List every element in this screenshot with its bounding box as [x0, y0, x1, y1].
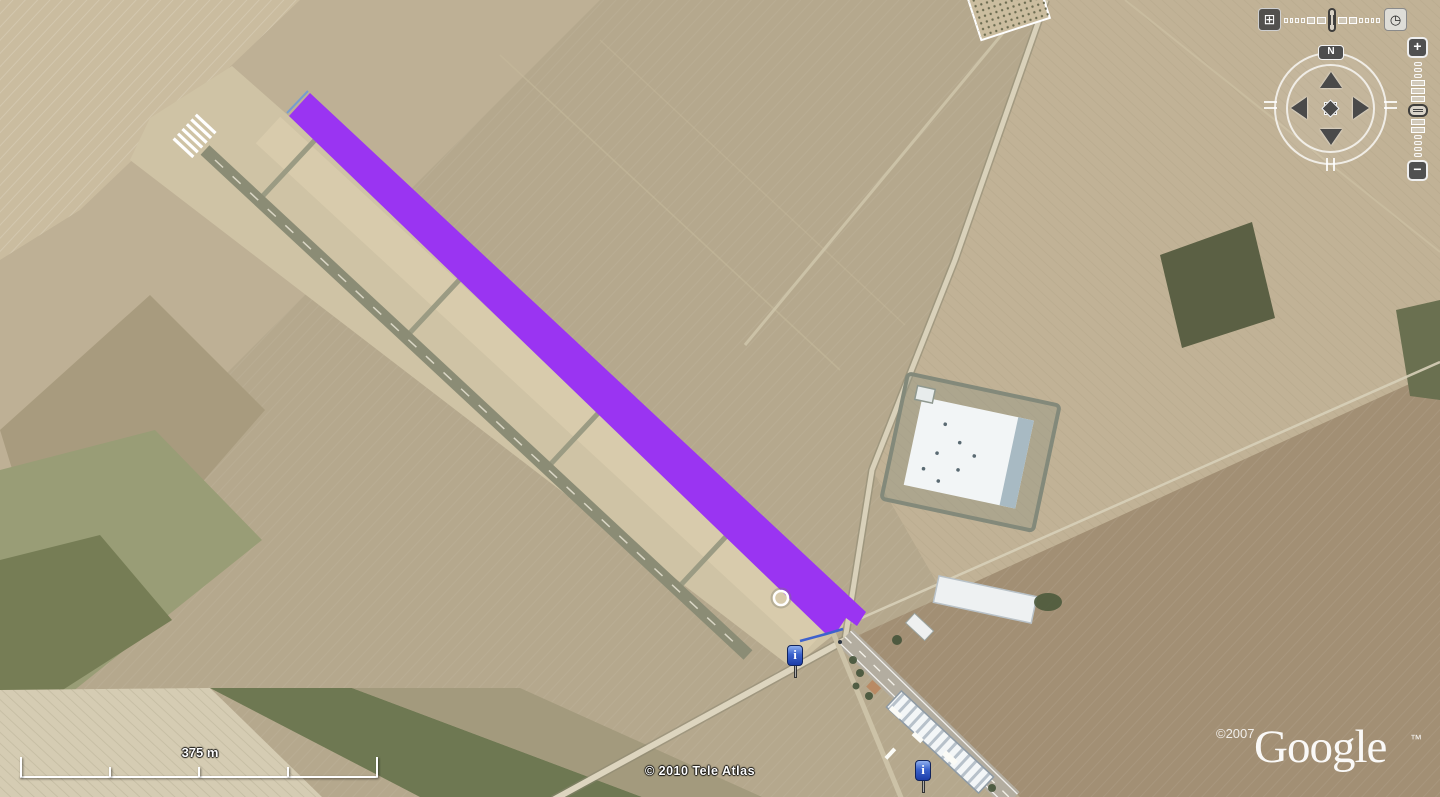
- info-marker[interactable]: i: [787, 645, 803, 679]
- trademark-symbol: ™: [1410, 732, 1422, 746]
- adjust-overlay-icon: ⊞: [1264, 11, 1276, 28]
- overlay-opacity-slider[interactable]: [1284, 9, 1380, 31]
- zoom-slider-thumb[interactable]: [1408, 104, 1428, 117]
- info-icon[interactable]: i: [915, 760, 931, 781]
- marker-stem: [922, 780, 925, 793]
- scale-label: 375 m: [170, 745, 230, 760]
- zoom-in-button[interactable]: +: [1407, 37, 1428, 58]
- reset-view-button[interactable]: [1321, 99, 1341, 119]
- adjust-overlay-button[interactable]: ⊞: [1258, 8, 1281, 31]
- pan-down-arrow[interactable]: [1320, 129, 1342, 145]
- north-button[interactable]: N: [1318, 45, 1344, 60]
- pan-up-arrow[interactable]: [1320, 72, 1342, 88]
- google-logo: Google: [1254, 720, 1386, 774]
- info-icon[interactable]: i: [787, 645, 803, 666]
- opacity-slider-thumb[interactable]: [1328, 8, 1337, 32]
- zoom-slider-track[interactable]: [1407, 62, 1428, 157]
- google-watermark: ©2007 Google ™: [1206, 718, 1436, 793]
- map-attribution: © 2010 Tele Atlas: [560, 764, 840, 778]
- historical-imagery-button[interactable]: ◷: [1384, 8, 1407, 31]
- zoom-out-button[interactable]: −: [1407, 160, 1428, 181]
- map-viewport[interactable]: i i ⊞ ◷ N: [0, 0, 1440, 797]
- pan-right-arrow[interactable]: [1353, 97, 1369, 119]
- satellite-imagery[interactable]: [0, 0, 1440, 797]
- tree-clump: [1034, 593, 1062, 611]
- clock-icon: ◷: [1390, 12, 1401, 28]
- info-marker[interactable]: i: [915, 760, 931, 794]
- logo-copyright: ©2007: [1216, 726, 1255, 741]
- pan-left-arrow[interactable]: [1291, 97, 1307, 119]
- marker-stem: [794, 665, 797, 678]
